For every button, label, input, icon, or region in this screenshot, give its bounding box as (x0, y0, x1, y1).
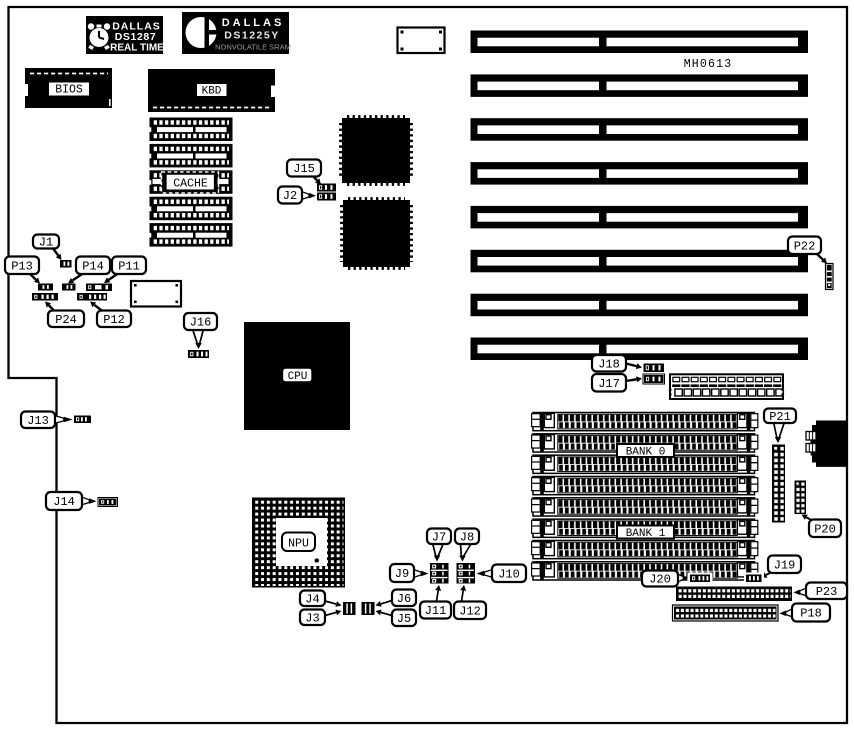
svg-text:J7: J7 (432, 530, 446, 544)
svg-text:CPU: CPU (288, 371, 308, 383)
svg-text:J1: J1 (39, 236, 53, 250)
svg-text:BIOS: BIOS (55, 84, 83, 97)
svg-text:P24: P24 (55, 313, 77, 327)
svg-text:REAL TIME: REAL TIME (110, 43, 164, 54)
svg-text:J8: J8 (460, 530, 474, 544)
svg-text:CACHE: CACHE (173, 177, 208, 190)
svg-text:J20: J20 (649, 573, 671, 587)
svg-text:P14: P14 (82, 259, 104, 273)
svg-text:J18: J18 (598, 357, 620, 371)
svg-text:P18: P18 (800, 607, 822, 621)
svg-text:BANK 1: BANK 1 (626, 528, 666, 540)
svg-text:J9: J9 (395, 567, 409, 581)
svg-text:P13: P13 (11, 259, 33, 273)
svg-text:DS1225Y: DS1225Y (224, 30, 279, 42)
svg-text:J11: J11 (425, 604, 447, 618)
svg-text:BANK 0: BANK 0 (626, 447, 666, 459)
svg-text:J14: J14 (53, 495, 75, 509)
svg-text:J17: J17 (598, 377, 620, 391)
svg-text:NPU: NPU (288, 538, 309, 551)
svg-text:J13: J13 (27, 414, 49, 428)
svg-text:P23: P23 (816, 585, 838, 599)
svg-text:P12: P12 (103, 313, 125, 327)
svg-text:P21: P21 (769, 410, 791, 424)
svg-text:P11: P11 (118, 259, 140, 273)
svg-text:P20: P20 (814, 522, 836, 536)
svg-text:J19: J19 (774, 558, 796, 572)
svg-text:NONVOLATILE SRAM: NONVOLATILE SRAM (215, 43, 291, 52)
svg-text:J6: J6 (397, 592, 411, 606)
svg-text:J10: J10 (498, 567, 520, 581)
svg-text:J15: J15 (293, 162, 315, 176)
svg-text:MH0613: MH0613 (684, 58, 733, 71)
svg-text:J2: J2 (283, 189, 297, 203)
svg-text:DALLAS: DALLAS (222, 17, 285, 29)
svg-text:P22: P22 (794, 239, 816, 253)
svg-text:J5: J5 (397, 612, 411, 626)
svg-text:J16: J16 (190, 316, 212, 330)
svg-text:J3: J3 (305, 611, 319, 625)
svg-text:J4: J4 (305, 592, 319, 606)
svg-text:J12: J12 (459, 604, 481, 618)
svg-text:DS1287: DS1287 (115, 31, 157, 43)
svg-text:KBD: KBD (202, 86, 222, 98)
